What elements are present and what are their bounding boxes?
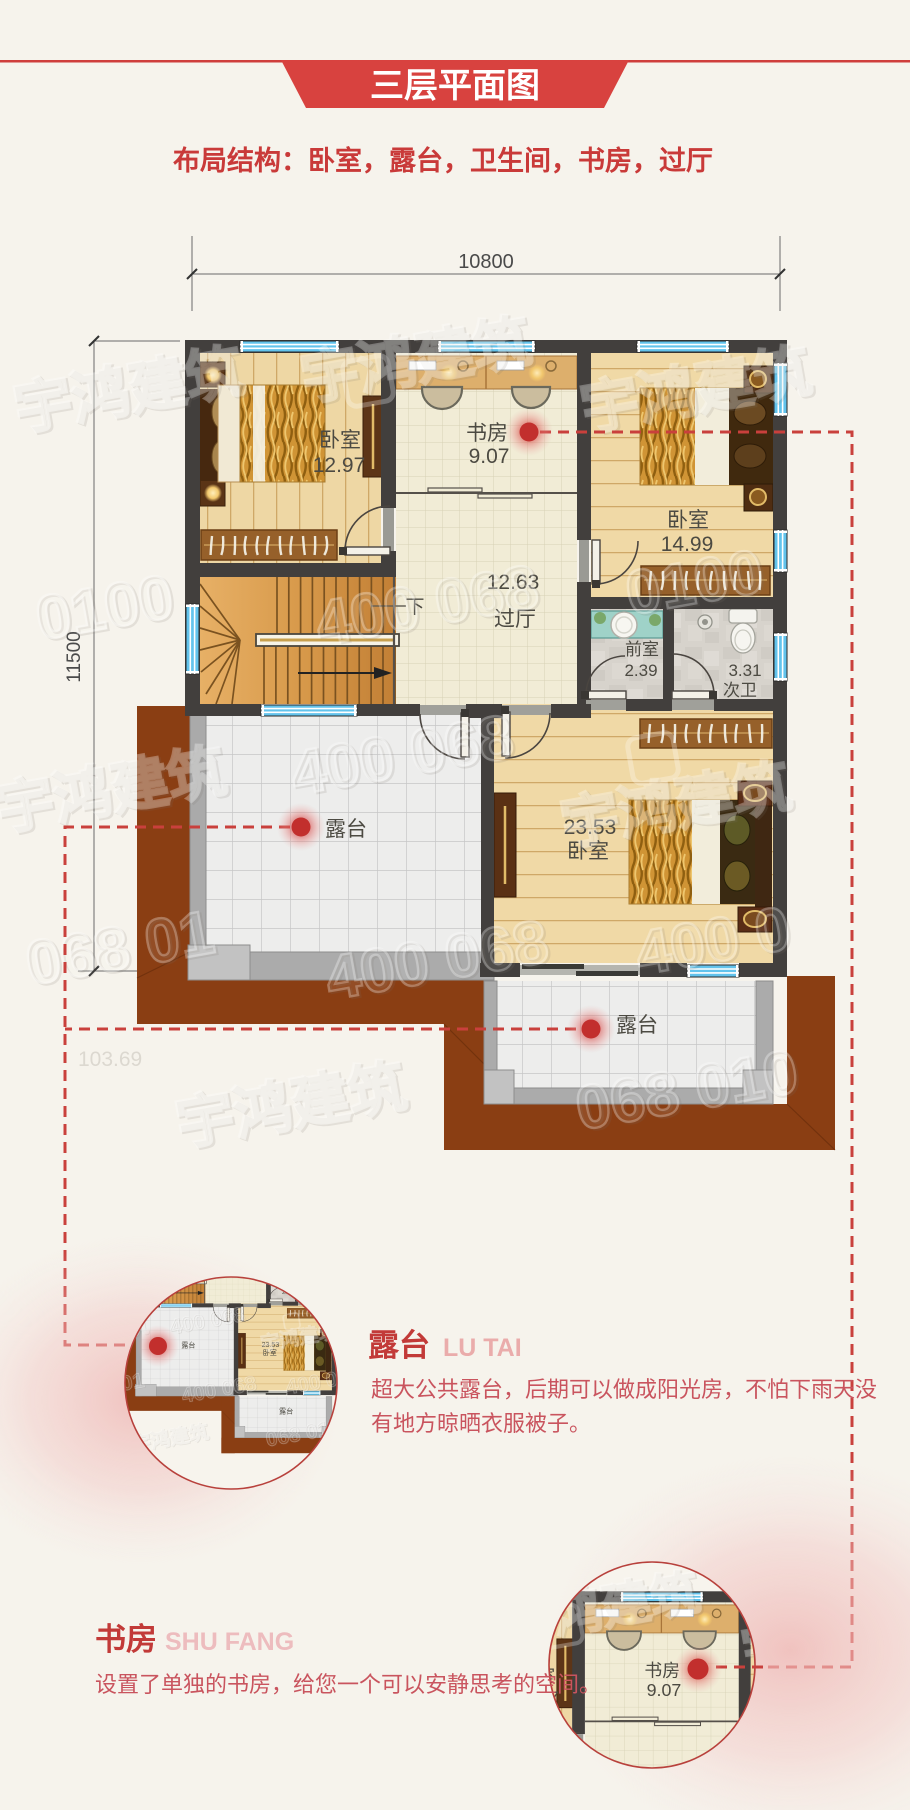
svg-text:有地方晾晒衣服被子。: 有地方晾晒衣服被子。	[371, 1411, 591, 1436]
svg-text:设置了单独的书房，给您一个可以安静思考的空间。: 设置了单独的书房，给您一个可以安静思考的空间。	[95, 1672, 601, 1697]
svg-text:103.69: 103.69	[78, 1048, 142, 1071]
svg-text:露台: 露台	[368, 1328, 430, 1363]
svg-text:布局结构：卧室，露台，卫生间，书房，过厅: 布局结构：卧室，露台，卫生间，书房，过厅	[173, 145, 713, 176]
svg-text:10800: 10800	[458, 251, 514, 273]
svg-text:超大公共露台，后期可以做成阳光房，不怕下雨天没: 超大公共露台，后期可以做成阳光房，不怕下雨天没	[371, 1377, 877, 1402]
svg-text:书房: 书房	[95, 1622, 157, 1657]
svg-text:LU TAI: LU TAI	[443, 1334, 522, 1362]
svg-text:三层平面图: 三层平面图	[370, 67, 540, 105]
svg-text:SHU FANG: SHU FANG	[165, 1628, 294, 1656]
